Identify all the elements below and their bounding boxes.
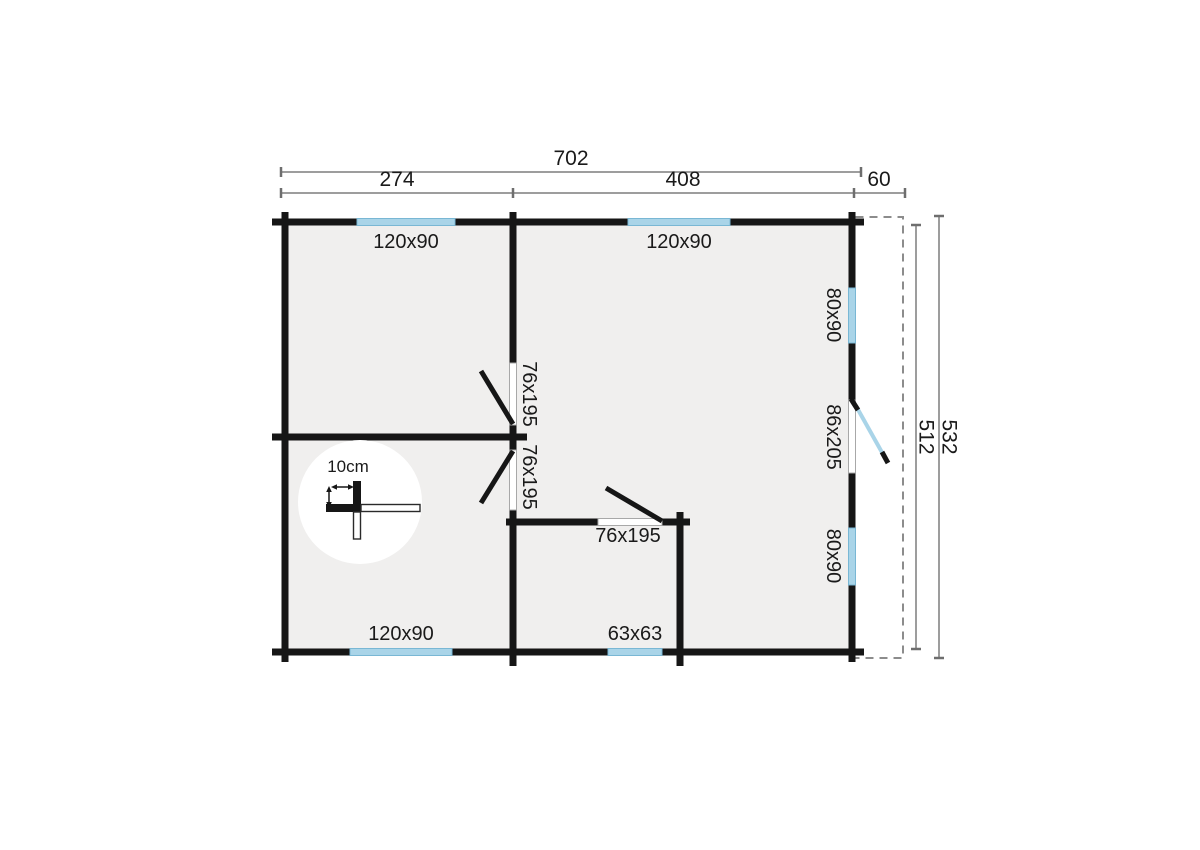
scale-wall-solid-vertical xyxy=(353,481,361,512)
window-top-left xyxy=(357,219,455,226)
floor-plan-page: 702 274 408 60 512 532 120x90 120x90 120… xyxy=(0,0,1200,850)
entrance-door-glazing xyxy=(856,406,884,456)
entrance-door-label: 86x205 xyxy=(822,404,844,470)
window-bottom-small xyxy=(608,649,662,656)
window-bottom-left-label: 120x90 xyxy=(368,623,434,645)
dim-inner-height-label: 512 xyxy=(915,419,938,454)
window-right-upper xyxy=(849,288,856,343)
entrance-door-opening xyxy=(849,400,856,473)
dim-right-segment-label: 408 xyxy=(665,168,700,191)
scale-wall-outline-horizontal xyxy=(361,505,420,512)
dim-left-segment-label: 274 xyxy=(379,168,414,191)
overhang-dashed-outline xyxy=(856,217,904,658)
dimension-overall-width: 702 xyxy=(281,147,861,177)
entrance-door-end-cap xyxy=(882,452,888,463)
window-bottom-small-label: 63x63 xyxy=(608,623,663,645)
dim-overall-label: 702 xyxy=(553,147,588,170)
dim-outer-height-label: 532 xyxy=(938,419,961,454)
window-bottom-left xyxy=(350,649,452,656)
window-top-right-label: 120x90 xyxy=(646,231,712,253)
window-top-left-label: 120x90 xyxy=(373,231,439,253)
interior-door-bottom-label: 76x195 xyxy=(595,525,661,547)
dimension-inner-height: 512 xyxy=(911,225,938,649)
scale-label: 10cm xyxy=(327,457,369,476)
dim-overhang-label: 60 xyxy=(867,168,890,191)
window-right-lower xyxy=(849,528,856,585)
dimension-outer-height: 532 xyxy=(934,216,961,658)
window-right-upper-label: 80x90 xyxy=(822,288,844,343)
scale-wall-outline-vertical xyxy=(354,512,361,539)
window-right-lower-label: 80x90 xyxy=(822,529,844,584)
window-top-right xyxy=(628,219,730,226)
scale-indicator: 10cm xyxy=(298,440,422,564)
floor-plan-drawing: 702 274 408 60 512 532 120x90 120x90 120… xyxy=(0,0,1200,850)
interior-door-lower-label: 76x195 xyxy=(518,444,540,510)
interior-door-upper-label: 76x195 xyxy=(518,361,540,427)
entrance-door-leaf xyxy=(851,399,888,463)
